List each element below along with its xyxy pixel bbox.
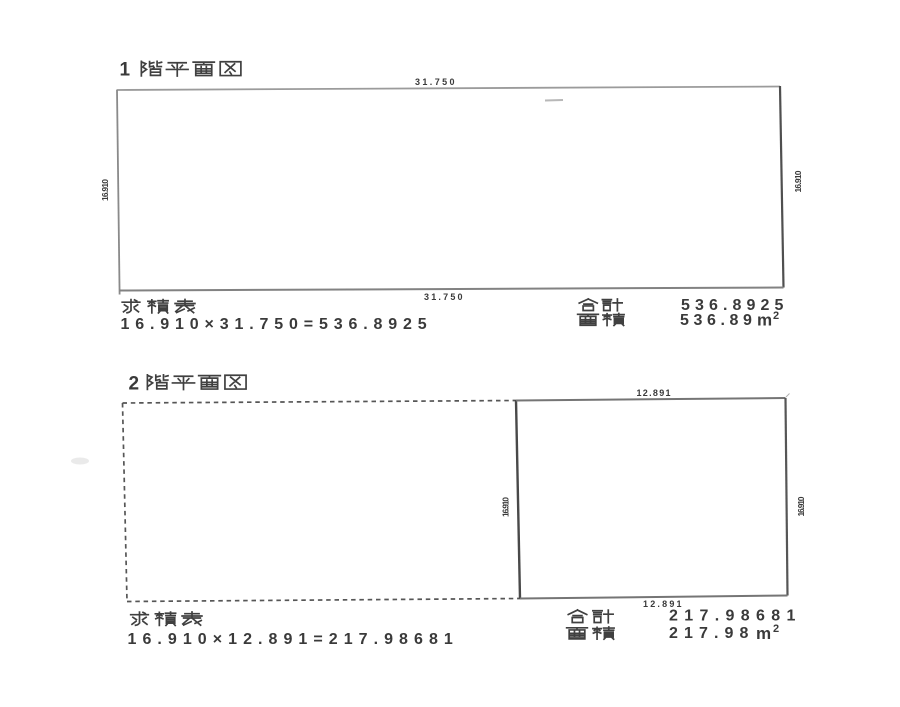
- svg-text:31.750: 31.750: [415, 77, 457, 87]
- svg-text:16.910×31.750=536.8925: 16.910×31.750=536.8925: [121, 316, 433, 333]
- svg-text:2: 2: [773, 623, 779, 635]
- svg-text:2: 2: [773, 310, 779, 322]
- svg-text:31.750: 31.750: [424, 292, 465, 302]
- svg-text:16.910×12.891=217.98681: 16.910×12.891=217.98681: [128, 631, 459, 648]
- svg-text:1: 1: [120, 60, 131, 81]
- svg-text:217.98681: 217.98681: [669, 608, 802, 625]
- svg-text:12.891: 12.891: [637, 388, 672, 398]
- svg-text:536.89: 536.89: [680, 312, 757, 329]
- svg-text:16.910: 16.910: [501, 497, 511, 517]
- svg-text:2: 2: [129, 374, 140, 395]
- svg-text:217.98: 217.98: [669, 625, 755, 642]
- svg-text:m: m: [756, 624, 771, 643]
- svg-text:16.910: 16.910: [793, 170, 803, 192]
- svg-text:16.910: 16.910: [796, 496, 806, 516]
- svg-text:16.910: 16.910: [100, 179, 110, 201]
- svg-text:m: m: [757, 311, 772, 330]
